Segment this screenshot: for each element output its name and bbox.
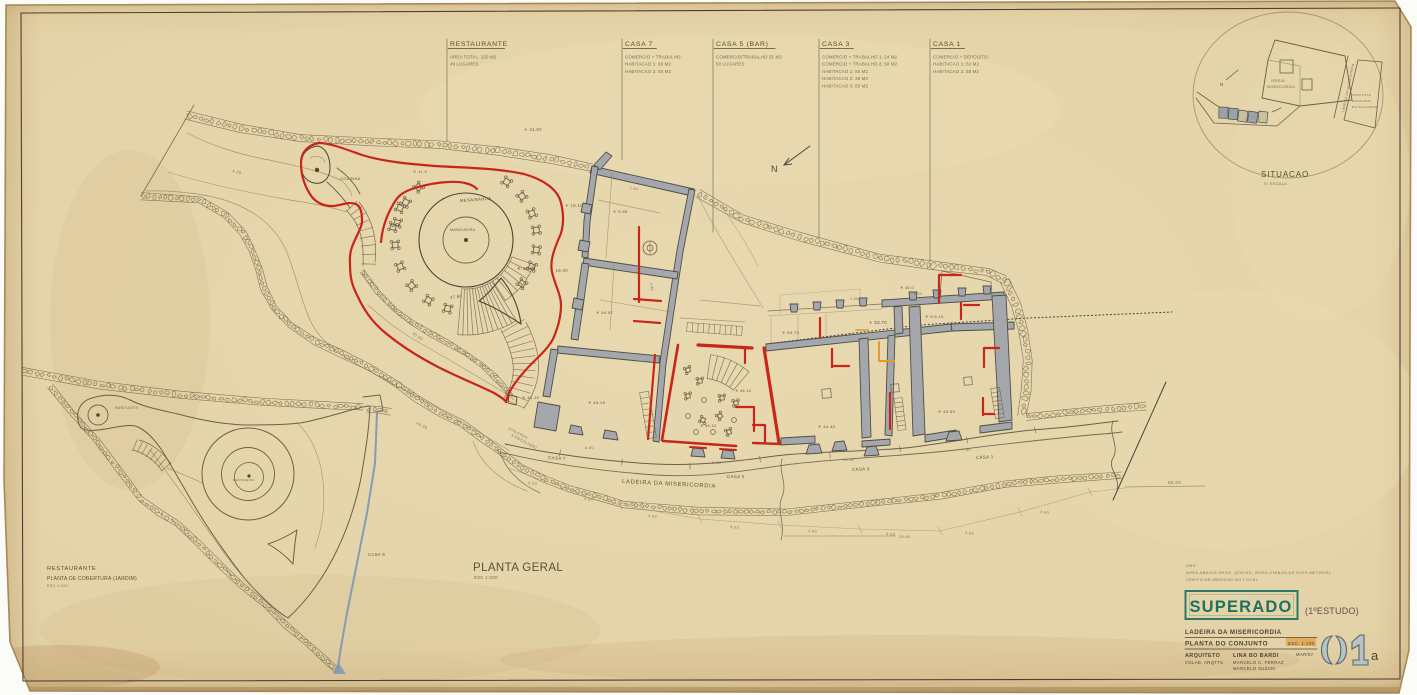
svg-text:MARCELO C. FERRAZ: MARCELO C. FERRAZ: [1233, 660, 1284, 665]
svg-text:2.80: 2.80: [850, 297, 858, 301]
svg-text:✳ 9.9.10: ✳ 9.9.10: [925, 314, 944, 319]
svg-text:✳ 46.0: ✳ 46.0: [900, 286, 914, 290]
svg-text:S/ ESCALA: S/ ESCALA: [1264, 182, 1287, 186]
svg-text:✳ 43.10: ✳ 43.10: [522, 395, 540, 400]
svg-text:✳ 42.50: ✳ 42.50: [517, 266, 536, 271]
svg-text:✳ 41.50: ✳ 41.50: [524, 127, 542, 132]
svg-text:CASA 3: CASA 3: [822, 41, 850, 48]
svg-text:INSTITUTO: INSTITUTO: [1352, 93, 1372, 97]
svg-text:✳ 41.6: ✳ 41.6: [413, 170, 427, 174]
svg-text:CASA 1: CASA 1: [933, 41, 961, 48]
svg-text:ESC 1:200: ESC 1:200: [474, 575, 498, 580]
svg-text:AREA ABAIXO-DESG. (ESCAD. ROSA: AREA ABAIXO-DESG. (ESCAD. ROSA ONIBUS DE…: [1186, 570, 1331, 575]
svg-text:MANGUEIRA: MANGUEIRA: [233, 478, 255, 482]
svg-text:COLAB. ARQTTS: COLAB. ARQTTS: [1185, 660, 1223, 665]
svg-text:✳ 53.70: ✳ 53.70: [869, 320, 887, 325]
svg-text:✳ 19.10: ✳ 19.10: [565, 203, 583, 208]
svg-text:HABITACAO 3: 83 M2: HABITACAO 3: 83 M2: [822, 83, 868, 88]
svg-text:✳ 19.00: ✳ 19.00: [550, 268, 568, 273]
svg-text:CASA 5: CASA 5: [727, 474, 745, 479]
svg-text:CASA 1: CASA 1: [976, 454, 994, 460]
svg-text:HABITACAO 2: 60 M2: HABITACAO 2: 60 M2: [625, 69, 671, 74]
svg-text:✳ 45.19: ✳ 45.19: [588, 400, 606, 405]
svg-text:✳ 44.40: ✳ 44.40: [818, 424, 836, 429]
svg-text:14.50: 14.50: [843, 458, 855, 462]
svg-text:VERIFICAR MEDIDAS NO LOCAL: VERIFICAR MEDIDAS NO LOCAL: [1186, 577, 1259, 582]
svg-text:MUNICIPAL: MUNICIPAL: [1352, 99, 1372, 103]
svg-text:CASA 5 (BAR): CASA 5 (BAR): [716, 41, 769, 48]
svg-text:✳ 9.55: ✳ 9.55: [613, 209, 628, 214]
svg-text:RESTAURANTE: RESTAURANTE: [450, 41, 508, 48]
svg-text:BABITANTE: BABITANTE: [115, 406, 139, 410]
svg-text:MARCELO SUZUKI: MARCELO SUZUKI: [1233, 666, 1276, 671]
svg-text:MISERICORDIA: MISERICORDIA: [1267, 85, 1296, 89]
svg-text:OBS:: OBS:: [1186, 563, 1197, 568]
svg-text:IGREJA: IGREJA: [1271, 79, 1285, 83]
svg-text:LINA BO BARDI: LINA BO BARDI: [1233, 653, 1279, 659]
svg-text:55.00: 55.00: [1168, 480, 1181, 485]
svg-text:ARQUITETO: ARQUITETO: [1185, 653, 1220, 659]
svg-text:LADEIRA DA MISERICORDIA: LADEIRA DA MISERICORDIA: [1185, 629, 1282, 636]
svg-text:HABITACAO 1: 82 M2: HABITACAO 1: 82 M2: [933, 62, 979, 67]
svg-text:✳ 54.07: ✳ 54.07: [596, 310, 614, 315]
svg-text:MANGUEIRA: MANGUEIRA: [450, 228, 476, 232]
svg-text:PLANTA DO CONJUNTO: PLANTA DO CONJUNTO: [1185, 641, 1268, 648]
svg-text:50 LUGARES: 50 LUGARES: [716, 62, 745, 67]
svg-text:ESC. 1:100: ESC. 1:100: [1288, 641, 1315, 646]
svg-text:SUPERADO: SUPERADO: [1189, 598, 1292, 616]
svg-text:COMERCIO/TRABALHO 55 M2: COMERCIO/TRABALHO 55 M2: [716, 55, 782, 60]
svg-text:AREA TOTAL: 220 M2: AREA TOTAL: 220 M2: [450, 55, 497, 60]
svg-text:49 LUGARES: 49 LUGARES: [450, 62, 479, 67]
svg-text:9.10: 9.10: [712, 461, 721, 465]
svg-text:7.60: 7.60: [962, 448, 971, 452]
svg-text:✳ 54.70: ✳ 54.70: [782, 330, 800, 335]
svg-text:ESC 1:100: ESC 1:100: [47, 584, 68, 588]
svg-text:HABITACAO 1: 50 M2: HABITACAO 1: 50 M2: [822, 69, 868, 74]
svg-text:8.50: 8.50: [585, 446, 594, 450]
svg-text:PLANTA GERAL: PLANTA GERAL: [473, 562, 563, 574]
svg-text:25.60: 25.60: [899, 535, 911, 539]
svg-text:✳ 44.10: ✳ 44.10: [700, 424, 717, 428]
svg-text:PLANTA DE COBERTURA (JARDIM): PLANTA DE COBERTURA (JARDIM): [47, 576, 137, 582]
svg-text:CASA 9: CASA 9: [368, 552, 385, 557]
svg-text:HABITACAO 2: 58 M2: HABITACAO 2: 58 M2: [933, 69, 979, 74]
svg-text:COMERCIO + TRABALHO 1: 24 M2: COMERCIO + TRABALHO 1: 24 M2: [822, 55, 898, 60]
svg-text:✳ 44.10: ✳ 44.10: [735, 389, 752, 393]
svg-text:a: a: [1371, 648, 1379, 663]
svg-text:N: N: [1220, 82, 1224, 87]
svg-text:8.60: 8.60: [914, 292, 922, 296]
svg-text:RESTAURANTE: RESTAURANTE: [47, 566, 96, 572]
svg-text:CASA 3: CASA 3: [852, 466, 870, 472]
svg-text:COMERCIO + DEPOSITO:: COMERCIO + DEPOSITO:: [933, 55, 989, 60]
svg-text:HABITACAO 1: 60 M2: HABITACAO 1: 60 M2: [625, 62, 671, 67]
svg-text:7.64: 7.64: [630, 187, 638, 191]
svg-text:HABITACAO 2: 38 M2: HABITACAO 2: 38 M2: [822, 76, 868, 81]
svg-text:MAR/87: MAR/87: [1296, 652, 1314, 657]
svg-text:N: N: [771, 164, 778, 174]
svg-text:SITUACAO: SITUACAO: [1261, 170, 1309, 179]
svg-text:(1ºESTUDO): (1ºESTUDO): [1305, 606, 1359, 616]
svg-text:COMERCIO + TRABALHO 2: 58 M2: COMERCIO + TRABALHO 2: 58 M2: [822, 62, 898, 67]
svg-text:COMERCIO + TRABALHO:: COMERCIO + TRABALHO:: [625, 55, 682, 60]
svg-text:DO SALVADOR: DO SALVADOR: [1352, 105, 1378, 109]
svg-text:CASA 7: CASA 7: [625, 41, 653, 48]
svg-text:✳ 45.50: ✳ 45.50: [938, 409, 956, 414]
